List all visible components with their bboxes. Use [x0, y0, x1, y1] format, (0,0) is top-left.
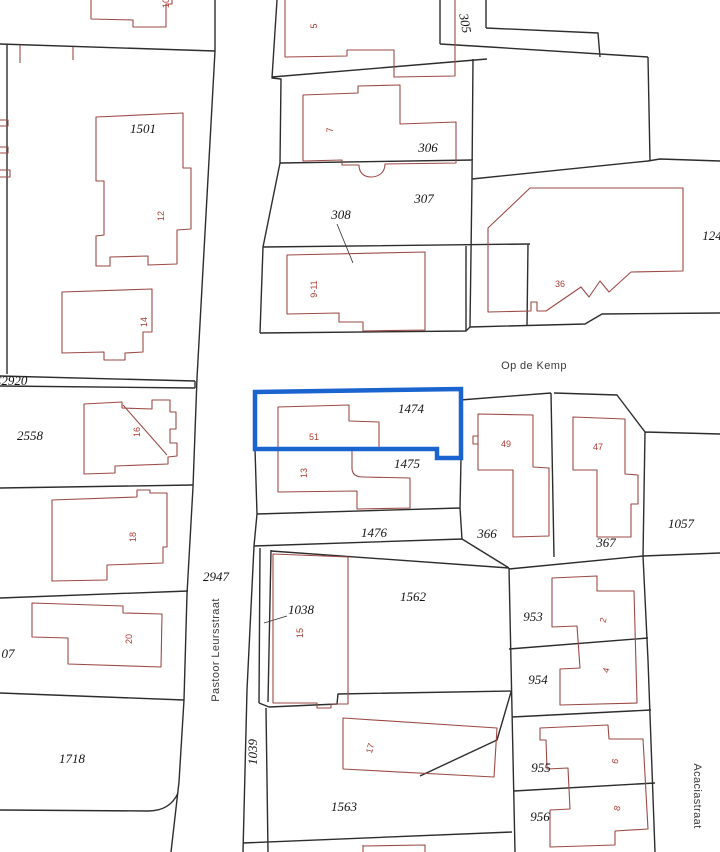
- house-number-label: 17: [364, 742, 376, 754]
- parcel-number-label: 1039: [245, 739, 260, 766]
- street-name-label: Pastoor Leursstraat: [210, 598, 222, 702]
- building-house-16: [84, 400, 177, 474]
- parcel-number-label: 1475: [394, 456, 421, 471]
- building-house-47: [573, 417, 638, 537]
- parcel-number-label: 367: [595, 535, 616, 550]
- parcel-number-label: 366: [476, 526, 497, 541]
- house-number-label: 51: [309, 432, 319, 442]
- building-bottom-partial: [363, 845, 425, 852]
- cadastral-map: 1501305306307308124C29202558147414751476…: [0, 0, 720, 852]
- parcel-number-label: 1038: [288, 602, 315, 617]
- parcel-number-label: 1563: [331, 799, 358, 814]
- house-number-label: 8: [612, 805, 623, 812]
- parcel-number-label: 07: [2, 646, 16, 661]
- parcel-number-label: 306: [417, 140, 438, 155]
- parcel-number-label: 308: [330, 207, 351, 222]
- building-house-18: [52, 490, 167, 581]
- parcel-number-label: 124: [702, 228, 720, 243]
- house-number-label: 47: [593, 442, 603, 452]
- parcel-boundaries: [0, 0, 720, 852]
- house-number-label: 4: [601, 667, 612, 674]
- parcel-number-label: 955: [531, 760, 551, 775]
- parcel-number-label: 956: [530, 809, 550, 824]
- boundary-north-center: [263, 0, 650, 331]
- map-canvas: 1501305306307308124C29202558147414751476…: [0, 0, 720, 852]
- parcel-number-label: C2920: [0, 373, 28, 388]
- street-name-label: Acaciastraat: [691, 763, 703, 828]
- house-number-label: 14: [139, 317, 149, 327]
- parcel-number-label: 305: [456, 11, 474, 34]
- parcel-number-label: 2947: [203, 569, 230, 584]
- parcel-number-label: 307: [413, 191, 434, 206]
- building-house-5: [285, 0, 455, 77]
- street-name-label: Op de Kemp: [501, 360, 567, 372]
- house-number-label: 16: [132, 427, 142, 437]
- boundary-center-parcels: [254, 393, 720, 569]
- parcel-number-label: 953: [523, 609, 543, 624]
- building-house-10-partial: [0, 0, 172, 177]
- parcel-number-label: 2558: [17, 428, 44, 443]
- parcel-number-label: 1476: [361, 525, 388, 540]
- parcel-number-labels: 1501305306307308124C29202558147414751476…: [0, 11, 720, 824]
- building-house-9-11: [287, 252, 425, 331]
- house-number-label: 36: [555, 279, 565, 289]
- boundary-south-parcels: [243, 548, 655, 852]
- building-house-20: [32, 603, 162, 667]
- house-number-label: 12: [156, 211, 166, 221]
- parcel-number-label: 1501: [130, 121, 156, 136]
- house-number-label: 15: [295, 628, 305, 638]
- house-number-label: 13: [299, 468, 309, 478]
- building-house-51-13: [278, 405, 410, 509]
- parcel-number-label: 1562: [400, 589, 427, 604]
- house-number-label: 20: [124, 634, 134, 644]
- highlighted-parcel-outline[interactable]: [255, 389, 461, 458]
- parcel-number-label: 1718: [59, 751, 86, 766]
- house-number-label: 6: [610, 758, 621, 765]
- house-number-label: 5: [309, 23, 319, 28]
- parcel-number-label: 1474: [398, 401, 425, 416]
- building-house-15: [273, 554, 348, 708]
- building-house-49: [473, 414, 549, 537]
- building-house-36: [488, 188, 683, 312]
- house-number-label: 49: [501, 439, 511, 449]
- building-outlines: [0, 0, 683, 852]
- boundary-road-edges: [148, 0, 281, 852]
- house-number-labels: 1057129-1136141651494713182152041768: [124, 0, 623, 812]
- house-number-label: 10: [161, 0, 171, 8]
- parcel-number-label: 1057: [668, 516, 695, 531]
- house-number-label: 7: [325, 127, 335, 132]
- parcel-number-label: 954: [528, 672, 548, 687]
- house-number-label: 9-11: [309, 280, 319, 297]
- house-number-label: 18: [128, 532, 138, 542]
- house-number-label: 2: [598, 617, 609, 624]
